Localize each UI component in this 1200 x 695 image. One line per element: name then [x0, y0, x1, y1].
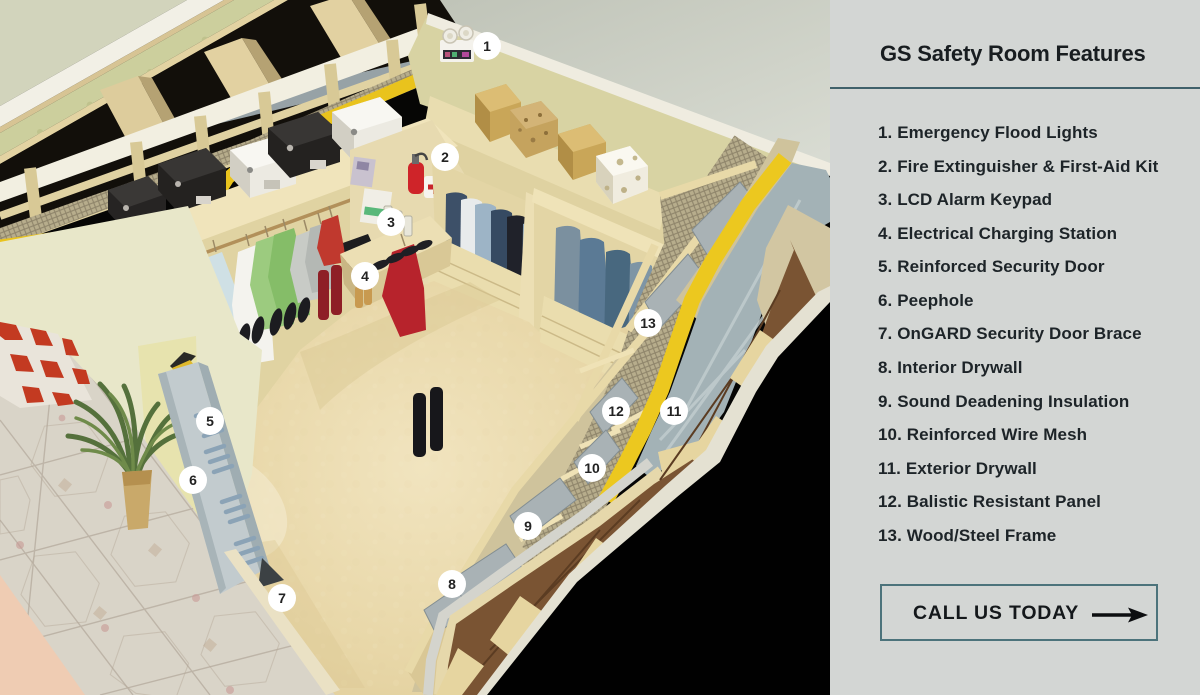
- svg-text:12: 12: [608, 403, 624, 419]
- svg-text:1: 1: [483, 38, 491, 54]
- svg-text:9: 9: [524, 518, 532, 534]
- svg-text:11: 11: [667, 403, 682, 419]
- svg-text:8: 8: [448, 576, 456, 592]
- svg-text:3: 3: [387, 214, 395, 230]
- svg-text:10: 10: [584, 460, 600, 476]
- svg-text:4: 4: [361, 268, 369, 284]
- svg-text:13: 13: [640, 315, 656, 331]
- svg-text:5: 5: [206, 413, 214, 429]
- svg-text:2: 2: [441, 149, 449, 165]
- svg-text:6: 6: [189, 472, 197, 488]
- svg-text:7: 7: [278, 590, 286, 606]
